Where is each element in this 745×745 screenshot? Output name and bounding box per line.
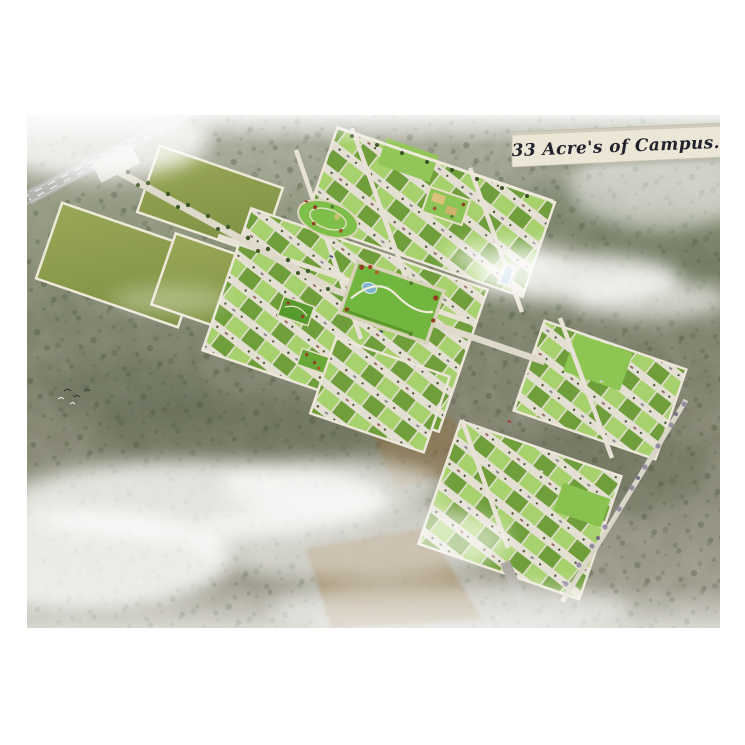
screenshot-canvas: 33 Acre's of Campus. [0, 0, 745, 745]
site-plan-rendering: 33 Acre's of Campus. [0, 0, 745, 745]
bottom-haze [27, 585, 720, 628]
